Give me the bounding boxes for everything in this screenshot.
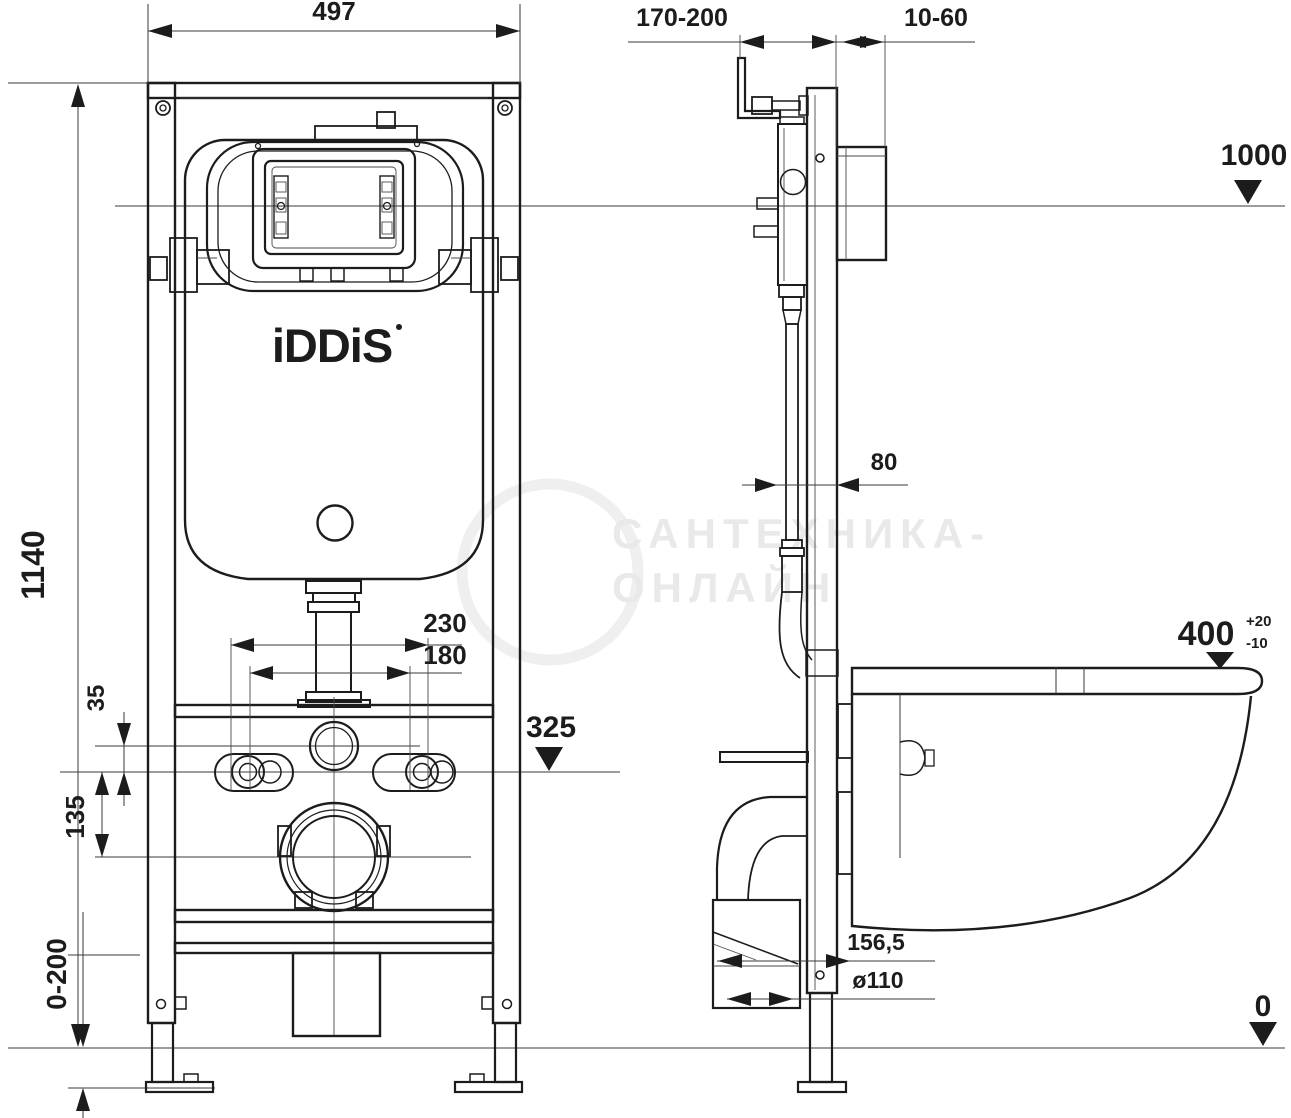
toilet-bowl	[838, 668, 1262, 930]
iddis-logo: iDDiS	[272, 319, 392, 372]
support-shelf	[720, 752, 808, 762]
flush-valve-button	[318, 506, 353, 541]
side-flush-pipe	[779, 285, 838, 678]
side-foot	[798, 1082, 846, 1092]
dim-seat-tol-minus: -10	[1246, 635, 1268, 652]
dim-leg-range: 0-200	[41, 938, 72, 1010]
top-crossbar	[148, 83, 520, 98]
drain-duct-box	[293, 953, 380, 1036]
wall-bracket	[738, 58, 780, 118]
side-leg	[810, 993, 832, 1082]
dim-level-325: 325	[526, 711, 576, 744]
flush-pipe	[298, 581, 370, 707]
dim-drain-offset: 135	[60, 795, 90, 838]
dim-seat-tol-plus: +20	[1246, 613, 1271, 630]
right-screw	[498, 101, 512, 115]
right-rail	[493, 83, 520, 1023]
dim-finish-range: 10-60	[904, 4, 968, 32]
dim-drain-setback: 156,5	[847, 929, 905, 955]
level-0-marker	[1249, 1022, 1277, 1046]
side-drain-elbow	[713, 797, 806, 1008]
level-400-marker	[1206, 652, 1234, 669]
flush-unit-box	[837, 147, 886, 260]
dim-level-0: 0	[1255, 990, 1272, 1023]
dim-frame-width: 497	[312, 0, 355, 26]
level-1000-marker	[1234, 180, 1262, 204]
dim-drain-diameter: ø110	[852, 967, 903, 993]
dim-bolt-max: 230	[423, 608, 466, 638]
cistern-side	[778, 124, 807, 285]
left-rail	[148, 83, 175, 1023]
dim-level-1000: 1000	[1221, 139, 1288, 172]
dim-depth-range: 170-200	[636, 4, 728, 32]
dim-bolt-min: 180	[423, 640, 466, 670]
watermark-line2: ОНЛАЙН	[612, 563, 837, 611]
toilet-seat	[852, 668, 1262, 694]
watermark: САНТЕХНИКА- ОНЛАЙН	[462, 484, 991, 660]
registered-mark-dot	[396, 324, 402, 330]
watermark-line1: САНТЕХНИКА-	[612, 510, 991, 557]
left-screw	[156, 101, 170, 115]
dim-water-offset: 35	[83, 685, 110, 712]
level-325-marker	[535, 747, 563, 771]
dim-profile-depth: 80	[871, 449, 898, 476]
iddis-installation-frame-diagram: САНТЕХНИКА- ОНЛАЙН	[0, 0, 1291, 1118]
dim-frame-height: 1140	[15, 530, 51, 599]
technical-drawing-page: САНТЕХНИКА- ОНЛАЙН	[0, 0, 1291, 1118]
dim-seat-height: 400	[1178, 615, 1235, 653]
